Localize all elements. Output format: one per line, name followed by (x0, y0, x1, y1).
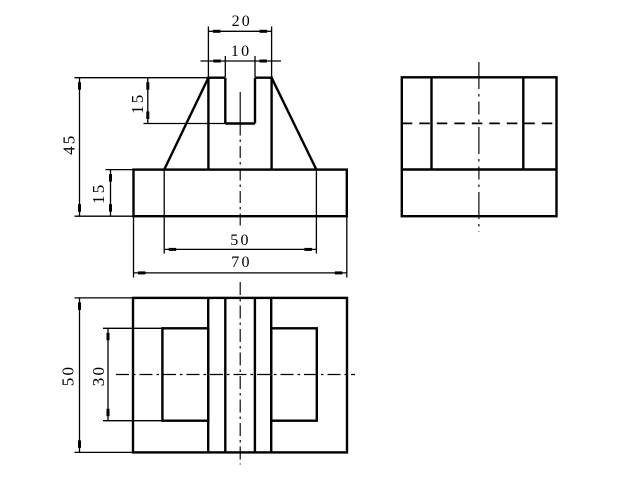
svg-text:70: 70 (231, 254, 251, 271)
svg-text:30: 30 (89, 365, 108, 386)
svg-text:20: 20 (232, 13, 252, 30)
svg-text:15: 15 (89, 183, 108, 204)
svg-text:15: 15 (128, 93, 147, 114)
svg-text:10: 10 (231, 43, 251, 60)
svg-text:50: 50 (58, 365, 77, 386)
svg-text:50: 50 (230, 232, 250, 249)
svg-text:45: 45 (59, 133, 78, 154)
